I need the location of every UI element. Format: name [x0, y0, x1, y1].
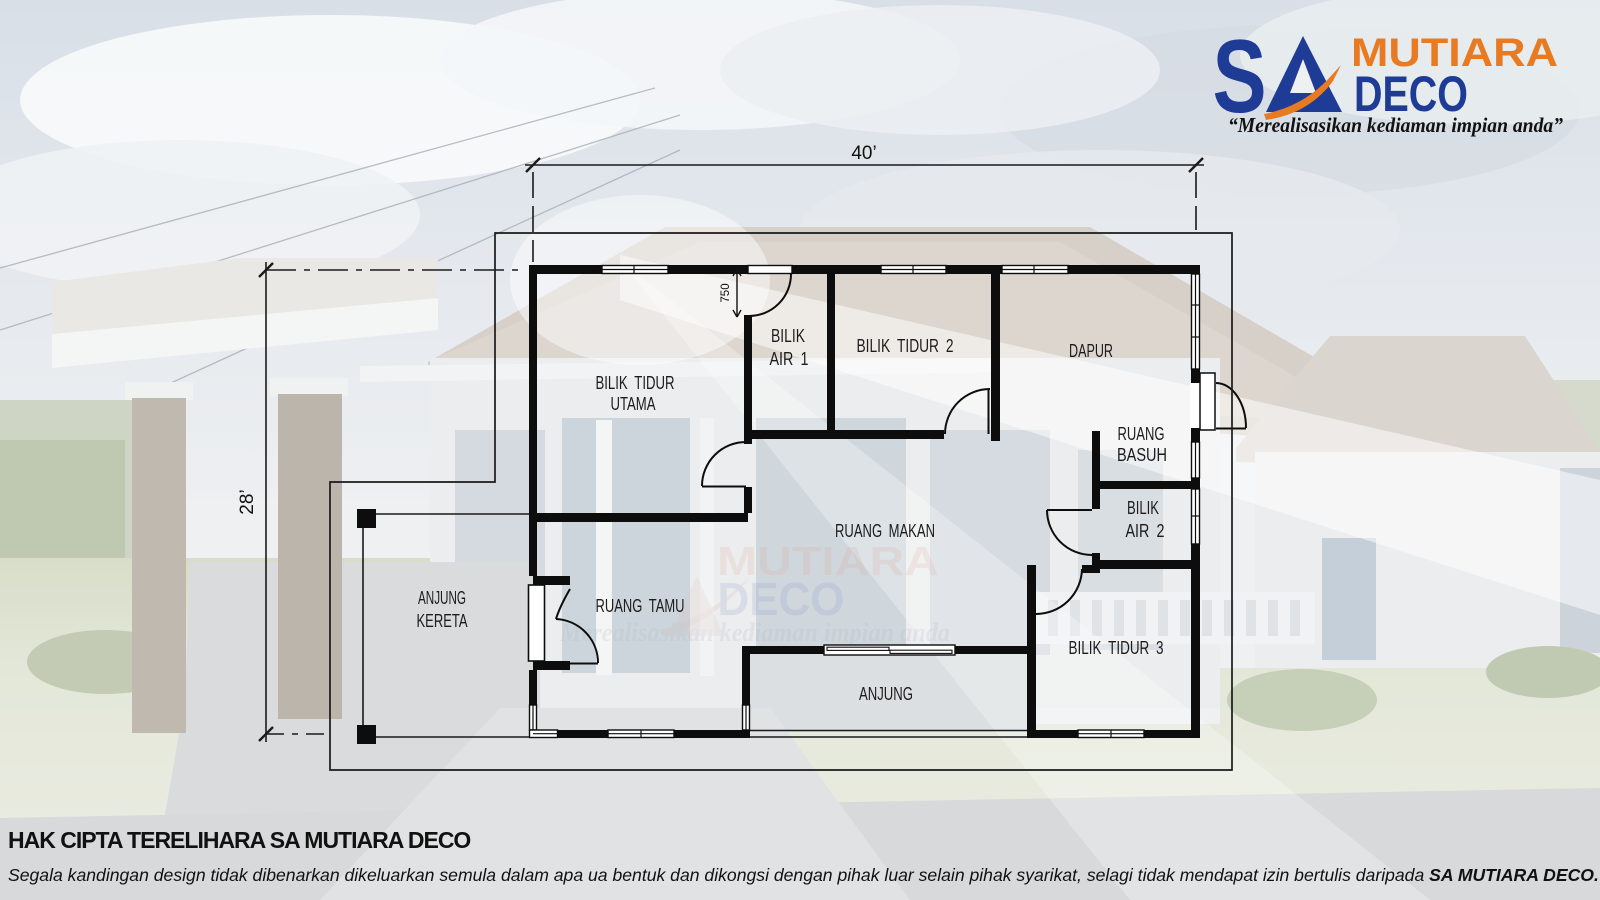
svg-text:AIR 1: AIR 1: [770, 348, 809, 369]
svg-text:ANJUNG: ANJUNG: [418, 587, 466, 608]
svg-text:BILIK: BILIK: [1127, 497, 1159, 518]
svg-text:BILIK TIDUR 2: BILIK TIDUR 2: [857, 335, 954, 356]
svg-text:“Merealisasikan kediaman impia: “Merealisasikan kediaman impian anda”: [1228, 113, 1563, 137]
svg-text:RUANG MAKAN: RUANG MAKAN: [835, 520, 935, 541]
svg-text:ANJUNG: ANJUNG: [859, 683, 913, 704]
svg-text:BILIK TIDUR 3: BILIK TIDUR 3: [1069, 637, 1164, 658]
svg-text:40’: 40’: [851, 143, 876, 164]
svg-text:RUANG: RUANG: [1118, 423, 1165, 444]
svg-text:BILIK TIDUR: BILIK TIDUR: [596, 372, 675, 393]
svg-text:RUANG TAMU: RUANG TAMU: [596, 595, 685, 616]
svg-text:DAPUR: DAPUR: [1069, 340, 1113, 361]
svg-text:BASUH: BASUH: [1117, 444, 1167, 465]
svg-text:750: 750: [720, 283, 732, 302]
svg-text:KERETA: KERETA: [417, 610, 468, 631]
svg-text:UTAMA: UTAMA: [611, 393, 656, 414]
svg-text:28’: 28’: [237, 489, 258, 514]
svg-text:BILIK: BILIK: [771, 325, 805, 346]
svg-text:AIR 2: AIR 2: [1126, 520, 1165, 541]
